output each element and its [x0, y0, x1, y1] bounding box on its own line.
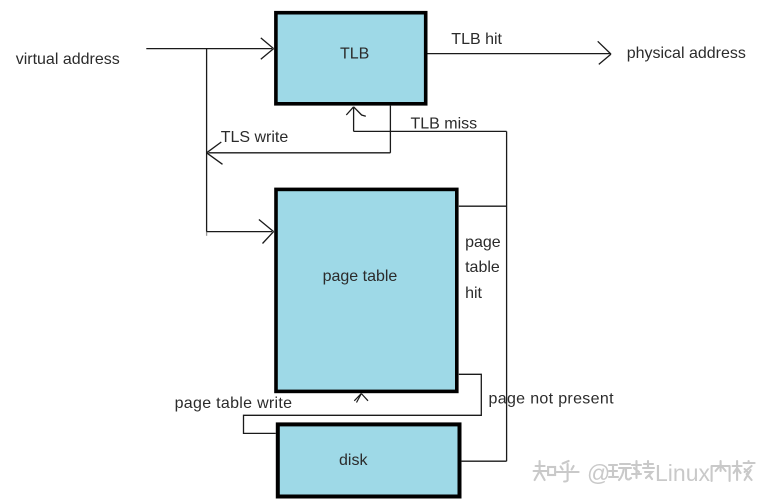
svg-text:page: page [465, 234, 501, 251]
svg-text:TLS write: TLS write [221, 129, 289, 146]
svg-text:virtual address: virtual address [16, 51, 120, 68]
svg-text:page table: page table [323, 268, 398, 285]
svg-text:TLB: TLB [340, 45, 369, 62]
svg-text:page table write: page table write [175, 395, 293, 412]
svg-text:Linux: Linux [655, 460, 710, 486]
svg-text:TLB hit: TLB hit [451, 31, 502, 48]
svg-text:disk: disk [339, 452, 368, 469]
svg-text:physical address: physical address [627, 45, 746, 62]
svg-text:TLB miss: TLB miss [411, 115, 478, 132]
svg-text:@: @ [587, 460, 610, 486]
svg-text:table: table [465, 259, 500, 276]
svg-text:page not present: page not present [489, 391, 615, 408]
svg-text:hit: hit [465, 285, 482, 302]
